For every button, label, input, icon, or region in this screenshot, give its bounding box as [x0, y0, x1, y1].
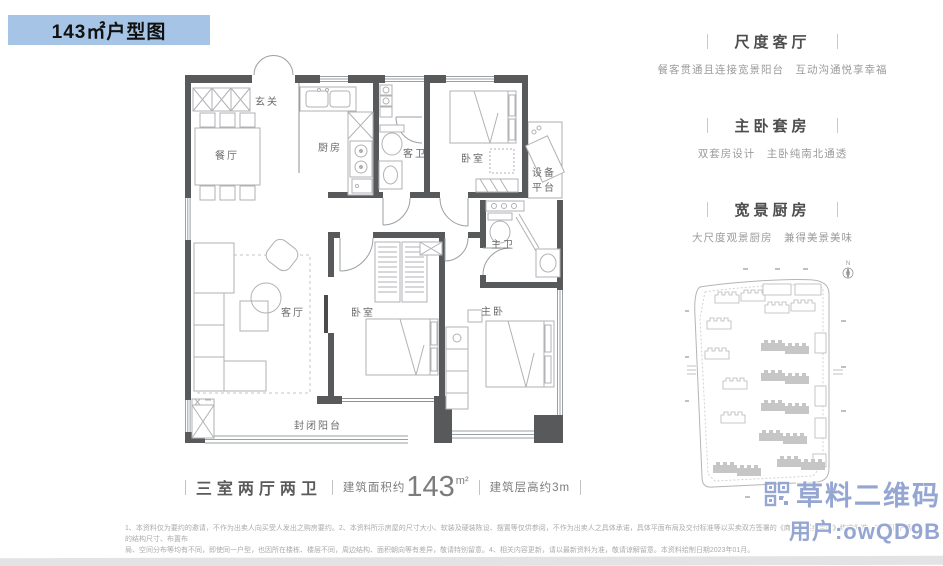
room-label-equipment-1: 设备: [532, 166, 556, 179]
feature-desc: 双套房设计 主卧纯南北通透: [655, 146, 890, 161]
watermark-user: 用户:owQD9B: [764, 514, 941, 546]
title-text: 143㎡户型图: [52, 17, 167, 44]
title-banner: 143㎡户型图: [8, 15, 210, 45]
feature-kitchen: 宽景厨房 大尺度观景厨房 兼得美景美味: [655, 199, 890, 245]
divider: [707, 34, 708, 49]
guest-bath-fixtures: [379, 85, 404, 189]
site-buildings-filled: [713, 340, 825, 476]
divider: [580, 480, 581, 495]
bed-icon: [450, 91, 516, 143]
divider: [479, 480, 480, 495]
nightstand: [468, 310, 482, 322]
entry-door: [254, 56, 293, 76]
divider: [707, 202, 708, 217]
divider: [837, 34, 838, 49]
dresser: [446, 327, 468, 409]
room-label-entry: 玄关: [255, 95, 279, 108]
feature-panel: 尺度客厅 餐客贯通且连接宽景阳台 互动沟通悦享幸福 主卧套房 双套房设计 主卧纯…: [655, 25, 890, 283]
master-bedroom-furniture: [446, 310, 554, 409]
bottom-strip: [0, 556, 943, 566]
room-label-living: 客厅: [281, 306, 305, 319]
room-label-bedroom-mid: 卧室: [351, 306, 375, 319]
room-label-master: 主卧: [481, 305, 505, 318]
divider: [707, 118, 708, 133]
room-label-bedroom-top: 卧室: [461, 152, 485, 165]
room-label-equipment-2: 平台: [532, 181, 556, 194]
site-plan: N: [683, 258, 883, 508]
bedroom-top-furniture: [450, 91, 518, 192]
divider: [332, 480, 333, 495]
armchair: [263, 236, 301, 274]
feature-desc: 餐客贯通且连接宽景阳台 互动沟通悦享幸福: [655, 62, 890, 77]
area-prefix: 建筑面积约: [343, 479, 406, 495]
feature-master-suite: 主卧套房 双套房设计 主卧纯南北通透: [655, 115, 890, 161]
layout-text: 三室两厅两卫: [196, 475, 322, 499]
divider: [837, 118, 838, 133]
toilet-icon: [488, 213, 512, 220]
area-group: 建筑面积约 143 m²: [343, 473, 469, 502]
sofa: [194, 243, 234, 293]
summary-bar: 三室两厅两卫 建筑面积约 143 m² 建筑层高约3m: [183, 470, 583, 504]
feature-title: 主卧套房: [734, 115, 810, 136]
room-label-kitchen: 厨房: [318, 141, 342, 154]
feature-desc: 大尺度观景厨房 兼得美景美味: [655, 230, 890, 245]
tv-icon: [324, 295, 328, 333]
floorplan-page: 143㎡户型图: [0, 0, 943, 566]
room-label-balcony: 封闭阳台: [294, 419, 342, 432]
watermark: 草料二维码 用户:owQD9B: [764, 474, 941, 546]
kitchen-counter: [300, 87, 373, 195]
qr-code-icon: [764, 481, 790, 507]
shoe-cabinet: [193, 88, 250, 111]
feature-title: 宽景厨房: [734, 199, 810, 220]
floor-plan: 玄关 餐厅 厨房 客卫 卧室 设备 平台 主卫 客厅 卧室 主卧 封闭阳台: [178, 55, 578, 475]
room-label-dining: 餐厅: [215, 149, 239, 162]
disclaimer-line2: 局、空间分布等均有不同，即使同一户型，也因所在楼栋、楼层不同，周边结构、面积朝向…: [125, 545, 915, 556]
balcony-furniture: [192, 399, 214, 438]
room-label-master-bath: 主卫: [491, 239, 515, 251]
floor-height-text: 建筑层高约3m: [490, 479, 570, 495]
area-value: 143: [406, 473, 454, 502]
divider: [837, 202, 838, 217]
compass-icon: N: [843, 261, 853, 279]
coffee-table: [240, 301, 268, 331]
room-label-guest-bath: 客卫: [403, 147, 427, 160]
toilet-icon: [380, 125, 404, 132]
feature-living: 尺度客厅 餐客贯通且连接宽景阳台 互动沟通悦享幸福: [655, 31, 890, 77]
feature-title: 尺度客厅: [734, 31, 810, 52]
watermark-brand: 草料二维码: [796, 474, 941, 513]
master-bath-fixtures: [486, 201, 560, 277]
divider: [185, 480, 186, 495]
bedroom-mid-furniture: [366, 242, 442, 375]
svg-text:N: N: [846, 261, 850, 267]
area-unit: m²: [456, 475, 469, 487]
shower-screen: [516, 214, 539, 251]
